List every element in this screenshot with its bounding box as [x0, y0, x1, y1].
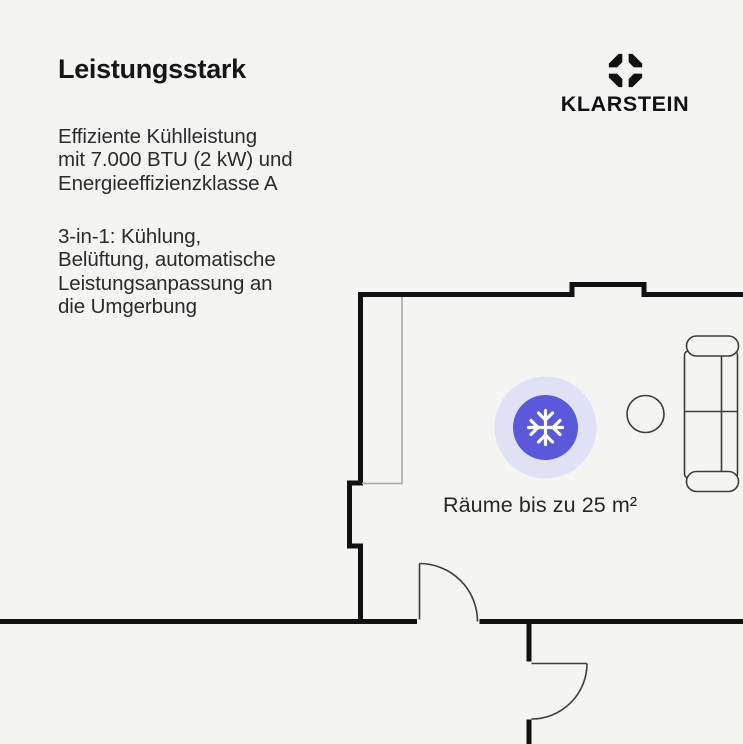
page-canvas: Leistungsstark Effiziente Kühlleistung m…: [0, 0, 743, 744]
wall-top: [358, 285, 743, 295]
sofa-armrest: [687, 472, 739, 492]
sofa: [685, 336, 739, 492]
sofa-armrest: [687, 336, 739, 356]
door-swing-arc: [420, 564, 478, 622]
door: [532, 664, 588, 720]
cooling-marker: [495, 377, 597, 479]
side-table: [627, 396, 664, 433]
sofa-body: [685, 351, 738, 478]
room-size-label: Räume bis zu 25 m²: [443, 493, 637, 518]
door: [420, 564, 478, 622]
window: [362, 297, 402, 484]
door-swing-arc: [532, 664, 588, 720]
floorplan: [0, 0, 743, 744]
wall-left: [350, 292, 361, 622]
